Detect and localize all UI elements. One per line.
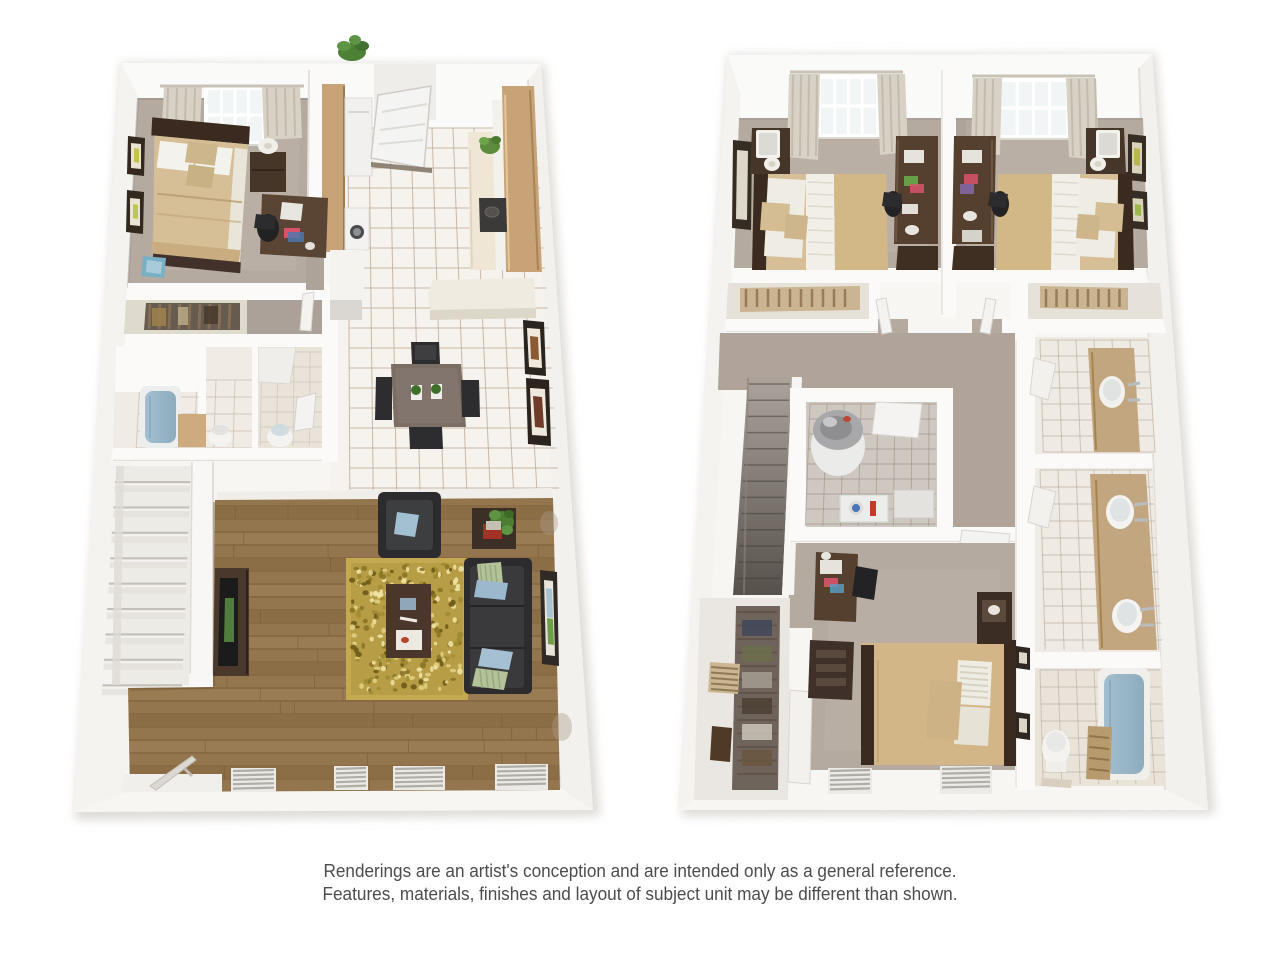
svg-text:Renderings are an artist's con: Renderings are an artist's conception an… (324, 860, 957, 881)
svg-text:Features, materials, finishes: Features, materials, finishes and layout… (323, 883, 958, 904)
